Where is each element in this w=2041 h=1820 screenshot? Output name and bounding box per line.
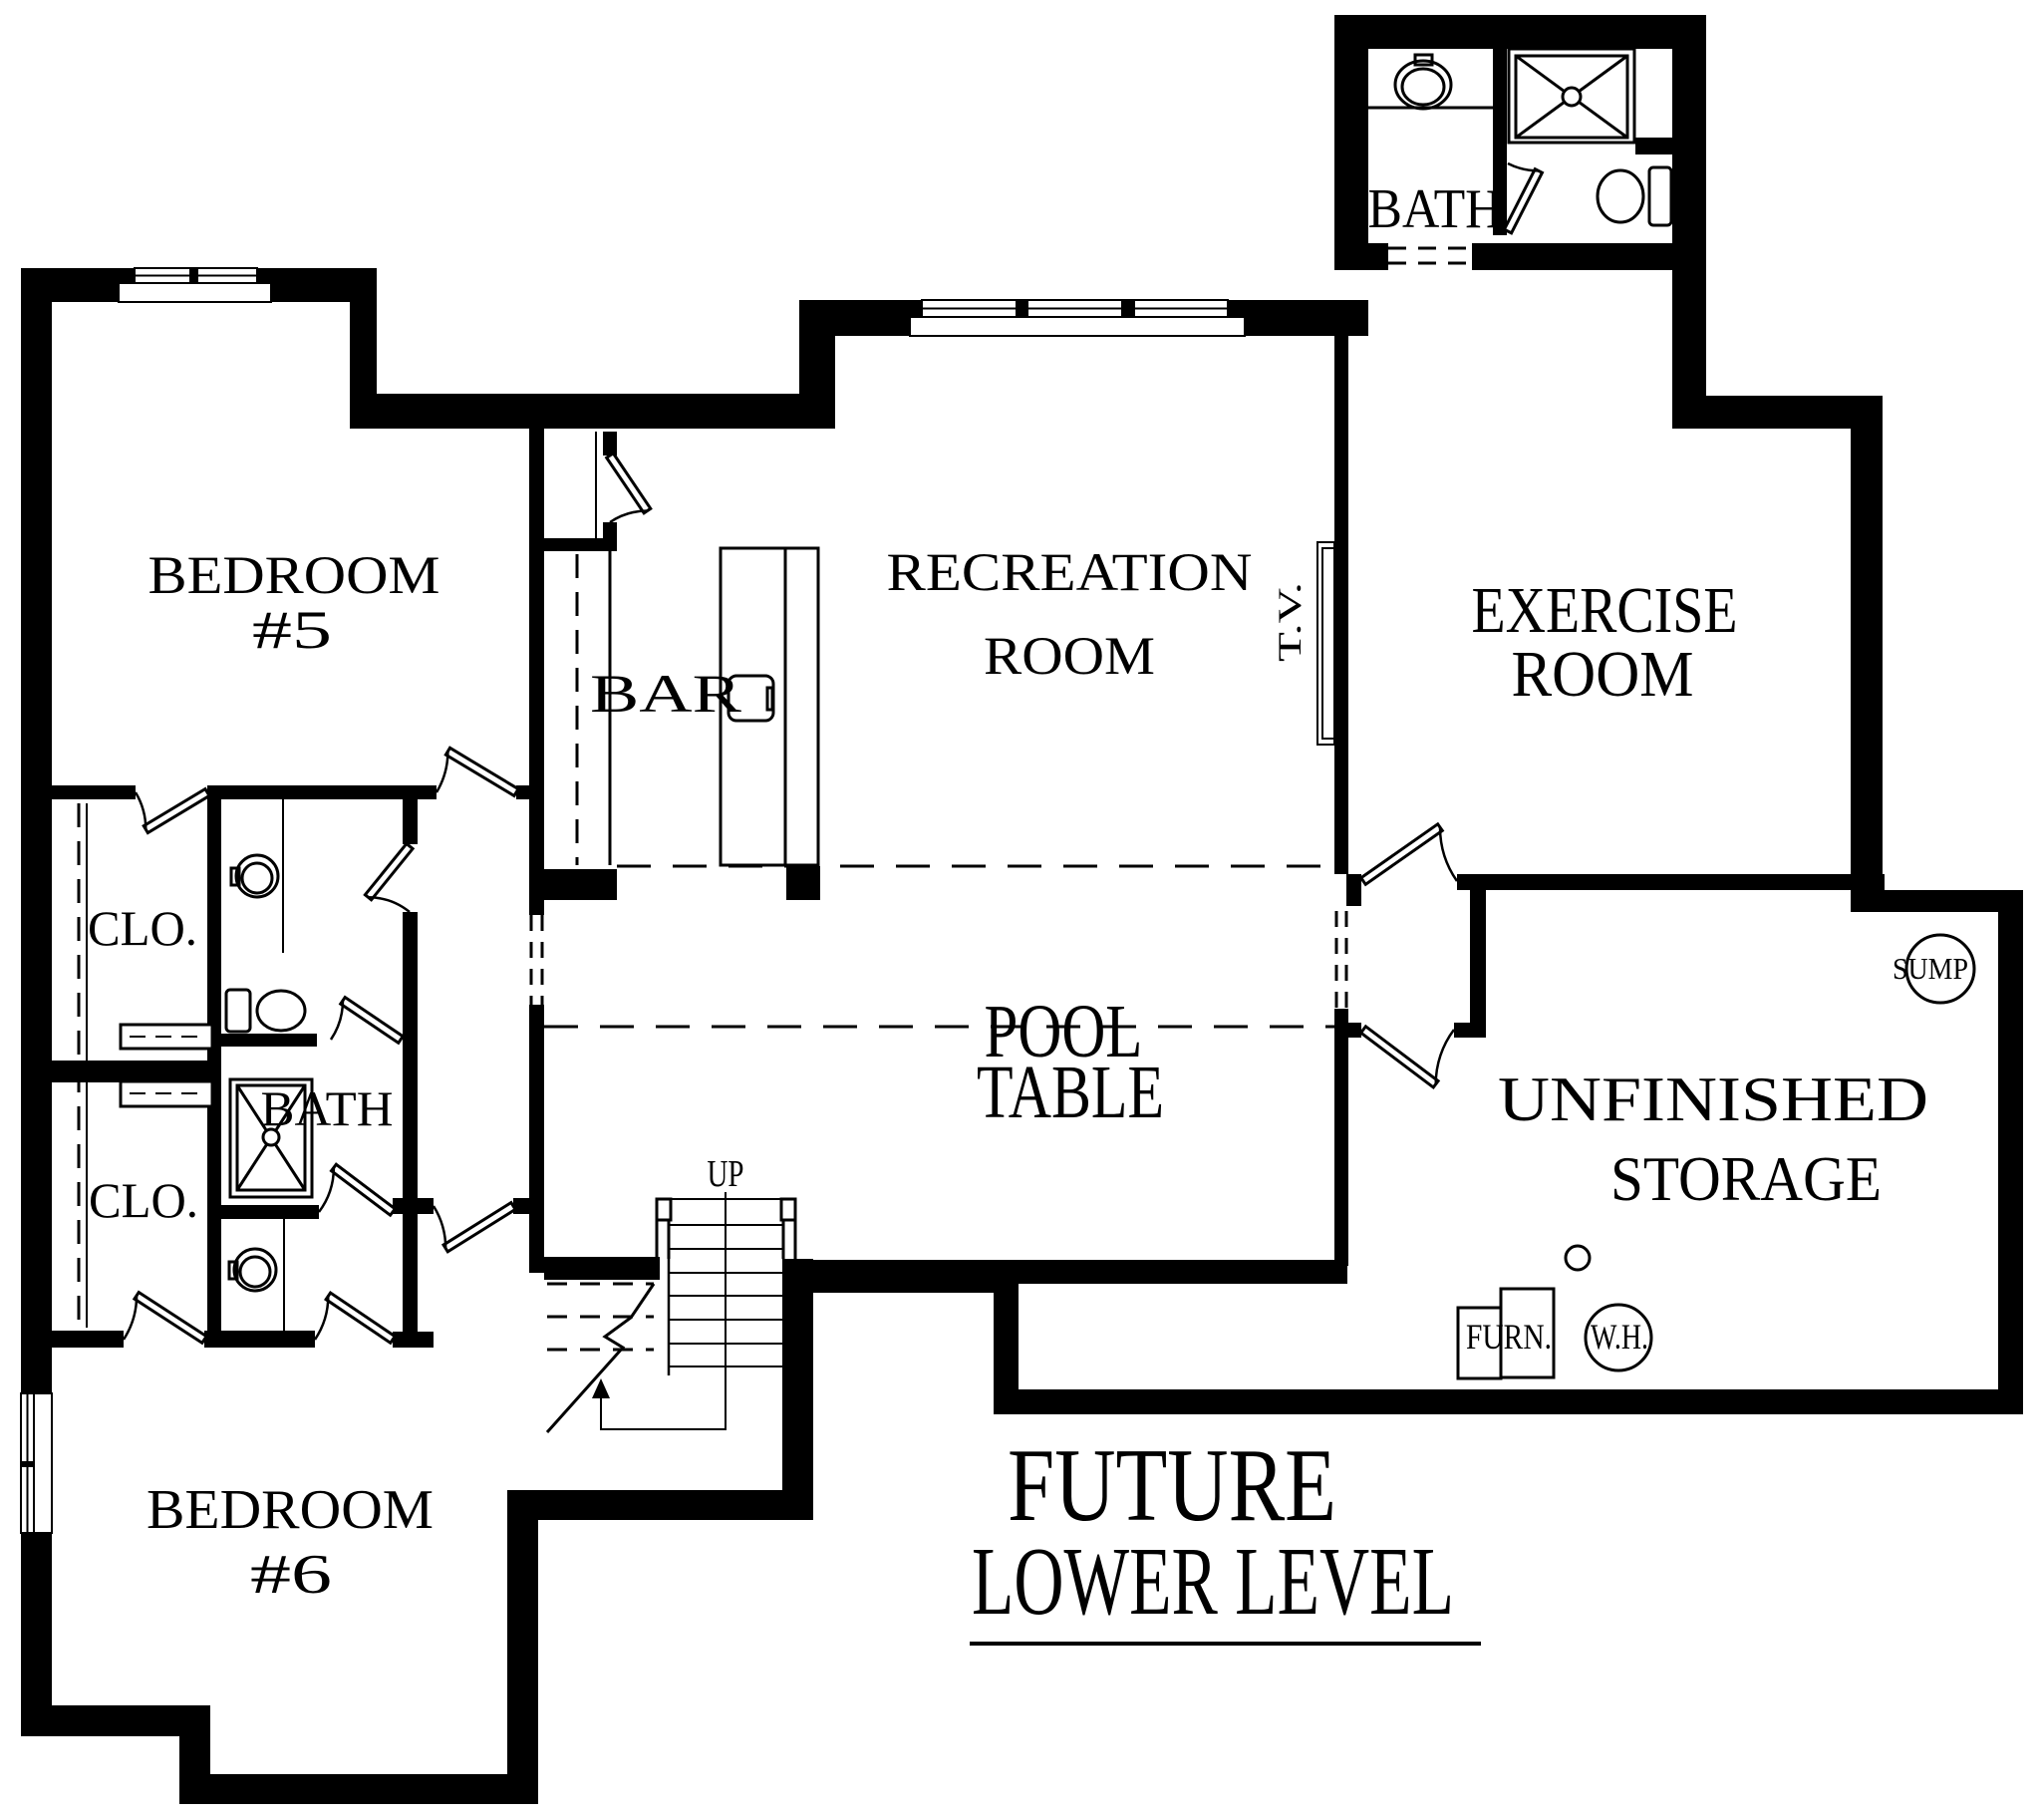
svg-text:FURN.: FURN. (1466, 1317, 1552, 1357)
svg-text:LOWER LEVEL: LOWER LEVEL (972, 1528, 1454, 1635)
svg-text:ROOM: ROOM (1512, 638, 1694, 711)
svg-text:FUTURE: FUTURE (1008, 1426, 1336, 1543)
svg-text:STORAGE: STORAGE (1610, 1143, 1882, 1214)
svg-text:ROOM: ROOM (984, 626, 1155, 686)
svg-text:BATH: BATH (1368, 178, 1503, 240)
svg-text:BEDROOM: BEDROOM (148, 545, 440, 605)
svg-text:BEDROOM: BEDROOM (146, 1479, 434, 1541)
svg-text:RECREATION: RECREATION (887, 542, 1253, 602)
svg-text:BATH: BATH (261, 1080, 394, 1136)
svg-text:CLO.: CLO. (89, 1172, 198, 1228)
svg-text:#6: #6 (250, 1544, 332, 1606)
svg-text:TABLE: TABLE (977, 1051, 1164, 1134)
svg-text:UP: UP (708, 1153, 744, 1195)
svg-text:EXERCISE: EXERCISE (1472, 574, 1738, 647)
svg-text:W.H.: W.H. (1591, 1317, 1648, 1357)
svg-text:T.V.: T.V. (1273, 582, 1309, 662)
svg-text:#5: #5 (252, 600, 332, 660)
svg-text:SUMP: SUMP (1893, 951, 1968, 986)
svg-text:UNFINISHED: UNFINISHED (1498, 1063, 1928, 1134)
svg-text:CLO.: CLO. (88, 900, 197, 956)
svg-text:BAR: BAR (590, 664, 741, 724)
